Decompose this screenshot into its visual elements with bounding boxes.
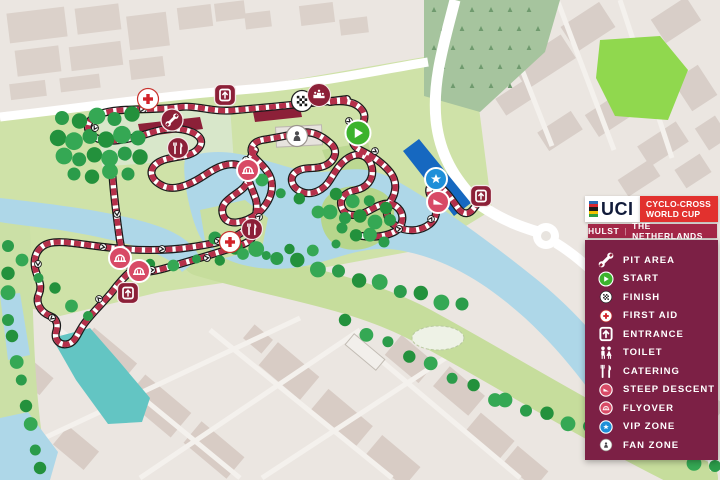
- start-play-icon: [597, 270, 615, 288]
- legend-item-label: FAN ZONE: [623, 440, 679, 451]
- red-cross-icon: [597, 307, 615, 325]
- fan-person-icon: [597, 436, 615, 454]
- wrench-icon: [597, 251, 615, 269]
- legend-item-catering: CATERING: [597, 362, 718, 381]
- legend-item-toilet: TOILET: [597, 344, 718, 363]
- catering-marker: [242, 219, 263, 240]
- legend-item-pit-area: PIT AREA: [597, 251, 718, 270]
- legend-item-label: FIRST AID: [623, 310, 678, 321]
- legend-list: PIT AREASTARTFINISHFIRST AIDENTRANCETOIL…: [597, 251, 718, 455]
- legend-item-label: PIT AREA: [623, 255, 675, 266]
- entrance-marker: [118, 283, 139, 304]
- location-divider: |: [624, 226, 627, 236]
- fork-knife-icon: [597, 362, 615, 380]
- legend-item-label: FLYOVER: [623, 403, 674, 414]
- legend-item-entrance: ENTRANCE: [597, 325, 718, 344]
- legend-item-first-aid: FIRST AID: [597, 307, 718, 326]
- legend-item-start: START: [597, 270, 718, 289]
- catering-marker: [168, 138, 189, 159]
- descent-ramp-icon: [597, 381, 615, 399]
- flyover-marker: [109, 247, 131, 269]
- uci-logo: UCI: [585, 196, 640, 222]
- location-city: HULST: [588, 226, 619, 236]
- start-marker: [346, 121, 371, 146]
- location-country: THE NETHERLANDS: [632, 221, 717, 241]
- first-aid-marker: [138, 89, 159, 110]
- vip-star-icon: [597, 418, 615, 436]
- toilet-figures-icon: [597, 344, 615, 362]
- podium-marker: [308, 84, 331, 107]
- flyover-marker: [128, 260, 150, 282]
- pond: [412, 326, 464, 350]
- uci-wordmark: UCI: [601, 200, 634, 218]
- location-bar: HULST | THE NETHERLANDS: [588, 224, 717, 238]
- entrance-marker: [215, 85, 236, 106]
- fan-zone-marker: [287, 126, 308, 147]
- legend-item-steep-descent: STEEP DESCENT: [597, 381, 718, 400]
- legend-item-vip-zone: VIP ZONE: [597, 418, 718, 437]
- legend-item-label: START: [623, 273, 659, 284]
- legend-item-label: TOILET: [623, 347, 663, 358]
- first-aid-marker: [220, 232, 241, 253]
- event-title-line2: WORLD CUP: [646, 209, 718, 219]
- legend-panel: PIT AREASTARTFINISHFIRST AIDENTRANCETOIL…: [585, 240, 718, 460]
- legend-item-label: ENTRANCE: [623, 329, 684, 340]
- legend-item-flyover: FLYOVER: [597, 399, 718, 418]
- legend-item-label: STEEP DESCENT: [623, 384, 715, 395]
- legend-item-finish: FINISH: [597, 288, 718, 307]
- uci-rainbow-stripes-icon: [589, 201, 598, 218]
- flyover-marker: [237, 159, 259, 181]
- vip-zone-marker: [425, 168, 447, 190]
- entrance-marker: [471, 186, 492, 207]
- event-title-line1: CYCLO-CROSS: [646, 199, 718, 209]
- steep-descent-marker: [427, 191, 449, 213]
- pit-area-marker: [161, 109, 183, 131]
- event-title-badge: CYCLO-CROSS WORLD CUP: [640, 196, 718, 222]
- flyover-bridge-icon: [597, 399, 615, 417]
- legend-item-label: VIP ZONE: [623, 421, 675, 432]
- legend-item-label: CATERING: [623, 366, 680, 377]
- legend-item-fan-zone: FAN ZONE: [597, 436, 718, 455]
- entrance-door-icon: [597, 325, 615, 343]
- course-map-page: UCI CYCLO-CROSS WORLD CUP HULST | THE NE…: [0, 0, 720, 480]
- checkered-flag-icon: [597, 288, 615, 306]
- legend-item-label: FINISH: [623, 292, 660, 303]
